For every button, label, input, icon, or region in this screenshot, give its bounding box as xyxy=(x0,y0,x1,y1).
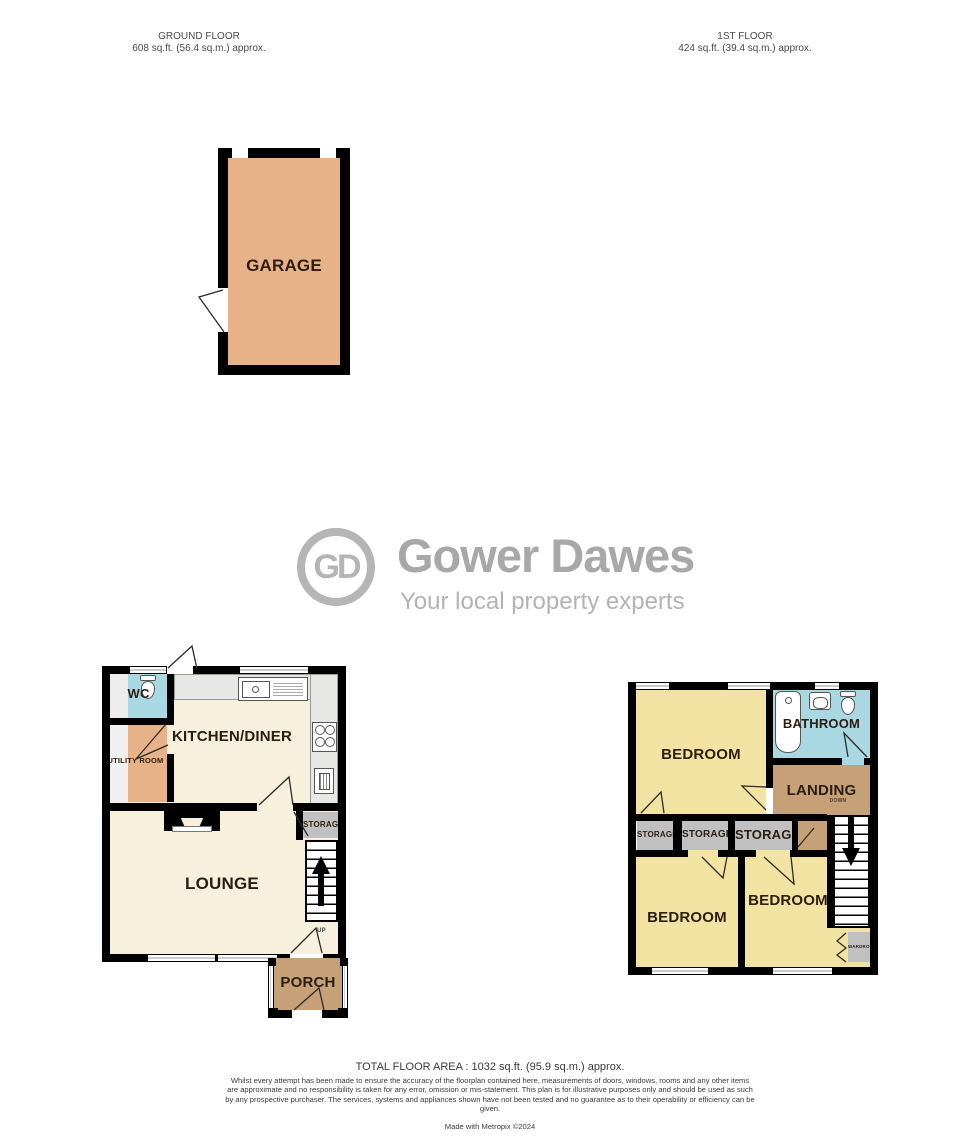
utility-room-label: UTILITY ROOM xyxy=(104,756,167,765)
storage-left-label: STORAGE xyxy=(637,830,673,839)
floorplan-page: GROUND FLOOR 608 sq.ft. (56.4 sq.m.) app… xyxy=(0,0,980,1136)
wardrobe: WARDROBE xyxy=(848,932,870,962)
sink-basin xyxy=(242,681,270,698)
ground-floor-title: GROUND FLOOR xyxy=(99,31,299,43)
gower-dawes-logo-icon: GD xyxy=(297,528,375,606)
wardrobe-label: WARDROBE xyxy=(848,944,870,949)
wall-wc-kitchen xyxy=(167,674,174,725)
bedroom-front-label: BEDROOM xyxy=(636,746,766,763)
bedroom-back-left-window xyxy=(652,967,708,975)
porch-corner xyxy=(268,1008,278,1018)
stairs-up xyxy=(305,840,338,922)
garage-wall-gap-right xyxy=(320,148,336,158)
wall-storage-row-bottom xyxy=(636,850,827,857)
wall-storage-div xyxy=(673,821,682,850)
bathroom-door-opening xyxy=(842,758,864,765)
stairs-up-label: UP xyxy=(305,928,338,934)
bedroom-back-right-label: BEDROOM xyxy=(732,892,844,909)
brand-tagline: Your local property experts xyxy=(400,588,685,616)
wall-storage-div xyxy=(792,821,798,850)
brand-name: Gower Dawes xyxy=(397,528,694,583)
sink-bowl xyxy=(813,697,828,709)
porch-corner xyxy=(338,1008,348,1018)
disclaimer-text: Whilst every attempt has been made to en… xyxy=(225,1076,755,1113)
hearth-icon xyxy=(172,826,212,832)
sink-drainer xyxy=(273,681,303,696)
garage-room: GARAGE xyxy=(218,148,350,375)
logo-monogram: GD xyxy=(314,548,359,587)
storage-left: STORAGE xyxy=(637,821,673,850)
storage-gf-label: STORAGE xyxy=(303,820,338,829)
total-floor-area: TOTAL FLOOR AREA : 1032 sq.ft. (95.9 sq.… xyxy=(220,1061,760,1073)
porch-label: PORCH xyxy=(268,974,348,991)
lounge-label: LOUNGE xyxy=(152,874,292,894)
storage-middle-door-opening xyxy=(688,850,718,857)
sink-drain xyxy=(252,686,259,693)
stairs-down xyxy=(833,815,870,928)
porch-room: PORCH xyxy=(268,958,348,1018)
wall-bedroom-landing xyxy=(766,758,773,788)
bedroom-back-right-window xyxy=(773,967,832,975)
bedroom-back-left-label: BEDROOM xyxy=(636,909,738,926)
wall-gf-right xyxy=(338,666,346,962)
wall-storage-div xyxy=(728,821,735,850)
wc-label: WC xyxy=(110,686,167,701)
first-floor-title: 1ST FLOOR xyxy=(645,31,845,43)
metropix-credit: Made with Metropix ©2024 xyxy=(225,1122,755,1131)
storage-middle-label: STORAGE xyxy=(682,829,728,840)
wall-wc-utility xyxy=(110,718,167,725)
wc-window xyxy=(130,666,166,674)
hob-burner xyxy=(315,737,325,747)
oven-icon xyxy=(314,768,334,794)
hob-icon xyxy=(312,722,337,752)
stairs-down-label: DOWN xyxy=(818,798,858,804)
wall-utility-kitchen xyxy=(167,754,174,802)
bedroom-front-window-right xyxy=(728,682,770,690)
garage-label: GARAGE xyxy=(228,256,340,276)
garage-door-opening xyxy=(218,288,228,332)
hob-burner xyxy=(325,737,335,747)
lounge-window-left xyxy=(148,954,215,962)
wall-storage-gf xyxy=(296,804,303,840)
kitchen-sink-icon xyxy=(238,677,308,701)
storage-middle: STORAGE xyxy=(682,821,728,850)
first-floor-header: 1ST FLOOR 424 sq.ft. (39.4 sq.m.) approx… xyxy=(645,31,845,55)
bathroom-window xyxy=(815,682,839,690)
ground-floor-plan: STORAGE UP WC UTILITY ROOM KITCHEN/DINER… xyxy=(102,666,346,962)
wall-gf-left xyxy=(102,666,110,962)
storage-right-label: STORAGE xyxy=(735,827,792,842)
oven-door xyxy=(319,773,330,790)
wall-bedroom2-bedroom3 xyxy=(738,857,745,967)
kitchen-window xyxy=(240,666,308,674)
porch-corner xyxy=(340,958,348,966)
bedroom-right-door-opening xyxy=(756,850,790,857)
ground-floor-area: 608 sq.ft. (56.4 sq.m.) approx. xyxy=(99,43,299,55)
wall-ff-right xyxy=(870,682,878,975)
front-door-opening xyxy=(292,1010,322,1018)
wall-storage-row-top xyxy=(636,814,827,821)
front-kitchen-door-opening xyxy=(167,666,193,674)
bathtub-drain xyxy=(785,697,792,704)
landing-label: LANDING xyxy=(773,782,870,799)
storage-right: STORAGE xyxy=(735,821,792,850)
storage-gf: STORAGE xyxy=(303,812,338,838)
wall-bedroom-bathroom xyxy=(766,690,773,758)
porch-corner xyxy=(268,958,276,966)
first-floor-plan: STORAGE STORAGE STORAGE WARDROBE BEDROOM… xyxy=(628,682,878,975)
ground-floor-header: GROUND FLOOR 608 sq.ft. (56.4 sq.m.) app… xyxy=(99,31,299,55)
bedroom-front-window-left xyxy=(636,682,669,690)
garage-wall-gap-left xyxy=(232,148,248,158)
bathroom-sink-icon xyxy=(809,692,831,710)
wall-ff-left xyxy=(628,682,636,975)
first-floor-area: 424 sq.ft. (39.4 sq.m.) approx. xyxy=(645,43,845,55)
kitchen-diner-label: KITCHEN/DINER xyxy=(162,728,302,745)
hob-burner xyxy=(315,725,325,735)
bedroom-back-right-room xyxy=(745,857,827,967)
wall-kitchen-lounge-left xyxy=(110,803,257,811)
bathroom-label: BATHROOM xyxy=(773,716,870,731)
hob-burner xyxy=(325,725,335,735)
